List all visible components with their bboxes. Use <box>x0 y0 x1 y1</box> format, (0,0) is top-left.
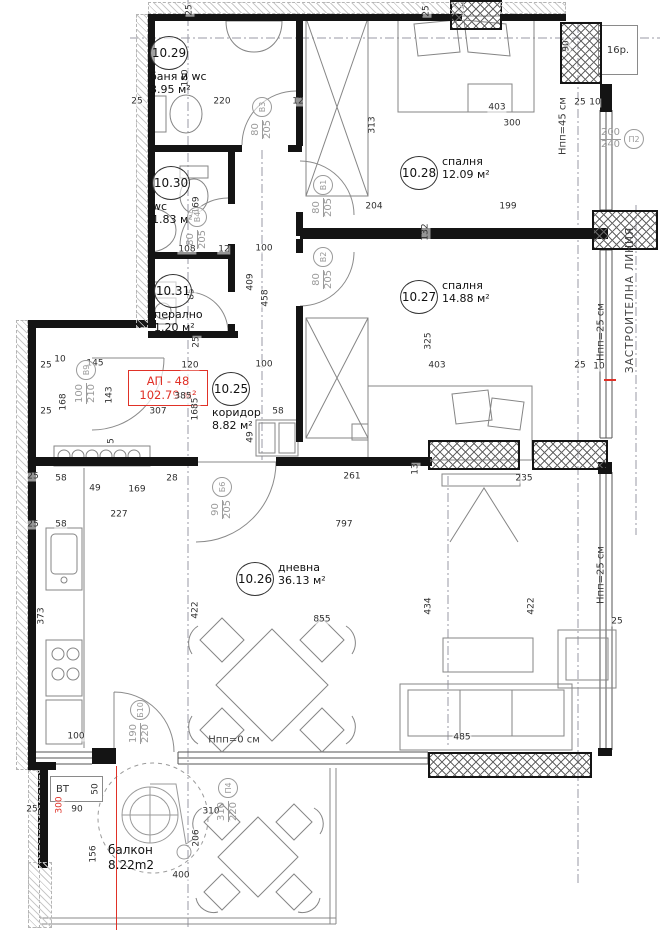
room-number-circle: 10.28 <box>400 156 438 190</box>
wall-segment <box>296 14 303 146</box>
dimension-label: 100 <box>254 245 273 254</box>
dimension-label: 25 <box>130 98 143 107</box>
room-name-area: баня и wc3.95 м² <box>150 71 207 96</box>
room-name-area: спалня14.88 м² <box>442 280 490 305</box>
dimension-label: 400 <box>171 872 190 881</box>
opening-id-circle: Б6 <box>212 477 232 497</box>
dimension-label: 403 <box>487 104 506 113</box>
dimension-label: 373 <box>38 606 47 625</box>
dimension-label: 25 <box>423 4 432 17</box>
dimension-label: 485 <box>452 734 471 743</box>
dimension-label: 120 <box>180 362 199 371</box>
wall-segment <box>30 762 56 770</box>
dimension-label: 422 <box>192 600 201 619</box>
room-label: 10.27спалня14.88 м² <box>400 280 490 314</box>
dimension-label: 100 <box>254 361 273 370</box>
dimension-label: 25 <box>39 408 52 417</box>
dimension-label: 313 <box>369 115 378 134</box>
insulation-strip <box>148 2 464 14</box>
tv-bench <box>443 638 533 672</box>
insulation-strip <box>500 2 566 14</box>
wall-segment <box>28 320 36 770</box>
room-number-circle: 10.27 <box>400 280 438 314</box>
opening-id-circle: В2 <box>313 247 333 267</box>
opening-id-circle: В1 <box>313 175 333 195</box>
annotation-text: Hпп=0 см <box>208 735 260 746</box>
dimension-label: 132 <box>422 222 431 241</box>
vt-label-text: ВТ <box>56 784 69 795</box>
wall-segment <box>500 14 566 21</box>
opening-id-circle: Б10 <box>130 700 150 720</box>
dimension-label: 409 <box>247 272 256 291</box>
dimension-label: 10 <box>592 363 605 372</box>
dimension-label: 25 <box>573 99 586 108</box>
sofa <box>400 684 572 750</box>
dimension-label: 199 <box>498 203 517 212</box>
dimension-label: 90 <box>70 806 83 815</box>
opening-id-circle: П2 <box>624 129 644 149</box>
dimension-label: 204 <box>364 203 383 212</box>
room-number-circle: 10.30 <box>152 166 190 200</box>
wardrobe <box>306 18 368 196</box>
opening-size-fraction: 100210 <box>75 383 97 404</box>
dimension-label: 797 <box>334 521 353 530</box>
dimension-label: 169 <box>127 486 146 495</box>
dimension-label: 58 <box>271 408 284 417</box>
dimension-label: 143 <box>106 385 115 404</box>
dimension-label: 49 <box>88 485 101 494</box>
dimension-label: 25 <box>25 806 38 815</box>
dimension-label: 855 <box>312 616 331 625</box>
planter <box>442 474 520 486</box>
insulation-strip <box>16 320 28 770</box>
annotation-text: ЗАСТРОИТЕЛНА ЛИНИЯ <box>624 227 636 373</box>
opening-size-fraction: 80205 <box>312 270 334 289</box>
hatched-pier <box>560 22 602 84</box>
kitchen-counter <box>46 468 84 748</box>
balcony-area: 8.22m2 <box>108 858 154 873</box>
dimension-label: 1685 <box>192 397 201 422</box>
dining-table <box>189 618 356 752</box>
opening-size-label: 80205В2 <box>312 247 334 289</box>
dimension-label: 235 <box>514 475 533 484</box>
dimension-label: 12 <box>217 246 230 255</box>
toilet <box>152 95 202 133</box>
dimension-label: 325 <box>425 331 434 350</box>
annotation-text: Hпп=25 см <box>596 546 607 604</box>
room-name-area: дневна36.13 м² <box>278 562 326 587</box>
opening-size-label: 200240П2 <box>600 128 644 150</box>
sink-basin <box>226 21 282 52</box>
opening-size-fraction: 80205 <box>251 120 273 139</box>
room-number-circle: 10.26 <box>236 562 274 596</box>
room-name-area: коридор8.82 м² <box>212 407 261 432</box>
insulation-strip <box>136 14 148 328</box>
dimension-label: 25 <box>26 521 39 530</box>
opening-size-fraction: 190220 <box>129 723 151 744</box>
opening-size-label: 90205Б6 <box>211 477 233 519</box>
dimension-label: 58 <box>54 521 67 530</box>
dimension-label: 13 <box>412 462 421 475</box>
wall-segment <box>228 152 235 204</box>
red-tick <box>604 379 616 381</box>
dimension-label: 422 <box>528 596 537 615</box>
awning-lines <box>450 488 518 542</box>
wall-segment <box>36 457 198 466</box>
balcony-name: балкон <box>108 843 154 858</box>
insulation-strip <box>28 862 52 928</box>
wardrobe <box>306 318 368 438</box>
dimension-label: 220 <box>212 98 231 107</box>
dimension-label: 50 <box>92 782 101 795</box>
room-label: 10.31перално1.20 м² <box>154 274 203 334</box>
opening-size-fraction: 200240 <box>600 128 621 150</box>
dimension-label: 10 <box>588 99 601 108</box>
dimension-label: 5 <box>108 437 117 445</box>
dimension-label: 10 <box>53 356 66 365</box>
room-label: 10.28спалня12.09 м² <box>400 156 490 190</box>
cooktop <box>46 640 82 696</box>
dimension-label: 458 <box>262 288 271 307</box>
dimension-label: 25 <box>193 335 202 348</box>
annotation-text: Hпп=45 см <box>558 97 569 155</box>
hatched-pier <box>428 440 520 470</box>
opening-size-label: 100210В9 <box>75 360 97 404</box>
room-label: 10.25коридор8.82 м² <box>212 372 261 432</box>
dimension-label: 168 <box>60 392 69 411</box>
dimension-label: 25 <box>186 3 195 16</box>
wall-segment <box>300 228 608 239</box>
dimension-label: 206 <box>193 828 202 847</box>
bed <box>398 16 534 112</box>
dimension-label: 28 <box>165 475 178 484</box>
opening-size-label: 80205В4 <box>186 207 208 249</box>
side-table <box>558 630 616 688</box>
room-number-circle: 10.31 <box>154 274 192 308</box>
opening-size-label: 80205В1 <box>312 175 334 217</box>
dimension-label: 403 <box>427 362 446 371</box>
apartment-code: АП - 48 <box>147 374 190 388</box>
room-number-circle: 10.25 <box>212 372 250 406</box>
opening-size-fraction: 80205 <box>312 198 334 217</box>
dimension-label: 307 <box>148 408 167 417</box>
opening-id-circle: П4 <box>218 778 238 798</box>
opening-id-circle: В3 <box>252 97 272 117</box>
dimension-label: 12 <box>291 98 304 107</box>
dimension-label: 49 <box>247 430 256 443</box>
wall-segment <box>92 748 116 764</box>
door-arc-b6 <box>196 462 276 542</box>
dimension-label: 227 <box>109 511 128 520</box>
dimension-label: 25 <box>610 618 623 627</box>
dimension-label: 25 <box>573 362 586 371</box>
dimension-label: 261 <box>342 473 361 482</box>
room-label: 10.29баня и wc3.95 м² <box>150 36 207 96</box>
dimension-label: 300 <box>502 120 521 129</box>
opening-size-label: 80205В3 <box>251 97 273 139</box>
staircase-label: 16р. <box>598 25 638 75</box>
wall-segment <box>148 14 462 21</box>
dimension-label: 100 <box>66 733 85 742</box>
staircase-label-text: 16р. <box>607 45 629 56</box>
dimension-label: 156 <box>90 844 99 863</box>
hatched-pier <box>428 752 592 778</box>
opening-size-fraction: 310220 <box>217 801 239 822</box>
opening-id-circle: В4 <box>187 207 207 227</box>
hatched-pier <box>532 440 608 470</box>
opening-id-circle: В9 <box>76 360 96 380</box>
wall-segment <box>598 748 612 756</box>
room-name-area: спалня12.09 м² <box>442 156 490 181</box>
opening-size-label: 190220Б10 <box>129 700 151 744</box>
room-label: 10.26дневна36.13 м² <box>236 562 326 596</box>
wall-segment <box>288 145 302 152</box>
dimension-label: 25 <box>26 473 39 482</box>
dimension-label: 90 <box>563 39 572 52</box>
balcony-label: балкон 8.22m2 <box>108 843 154 873</box>
annotation-text: Hпп=25 см <box>596 303 607 361</box>
dimension-label: 300 <box>56 795 65 814</box>
dimension-label: 58 <box>54 475 67 484</box>
wall-segment <box>600 84 612 112</box>
room-name-area: перално1.20 м² <box>154 309 203 334</box>
opening-size-fraction: 90205 <box>211 500 233 519</box>
opening-size-fraction: 80205 <box>186 230 208 249</box>
dimension-label: 25 <box>39 362 52 371</box>
dimension-label: 434 <box>425 596 434 615</box>
floor-plan: АП - 48 102.79 м² 16р. ВТ балкон 8.22m2 … <box>0 0 660 930</box>
wall-segment <box>276 457 432 466</box>
wall-segment <box>296 239 303 253</box>
room-number-circle: 10.29 <box>150 36 188 70</box>
balcony-table <box>193 804 323 913</box>
opening-size-label: 310220П4 <box>217 778 239 822</box>
wall-segment <box>148 145 242 152</box>
wall-segment <box>296 306 303 442</box>
